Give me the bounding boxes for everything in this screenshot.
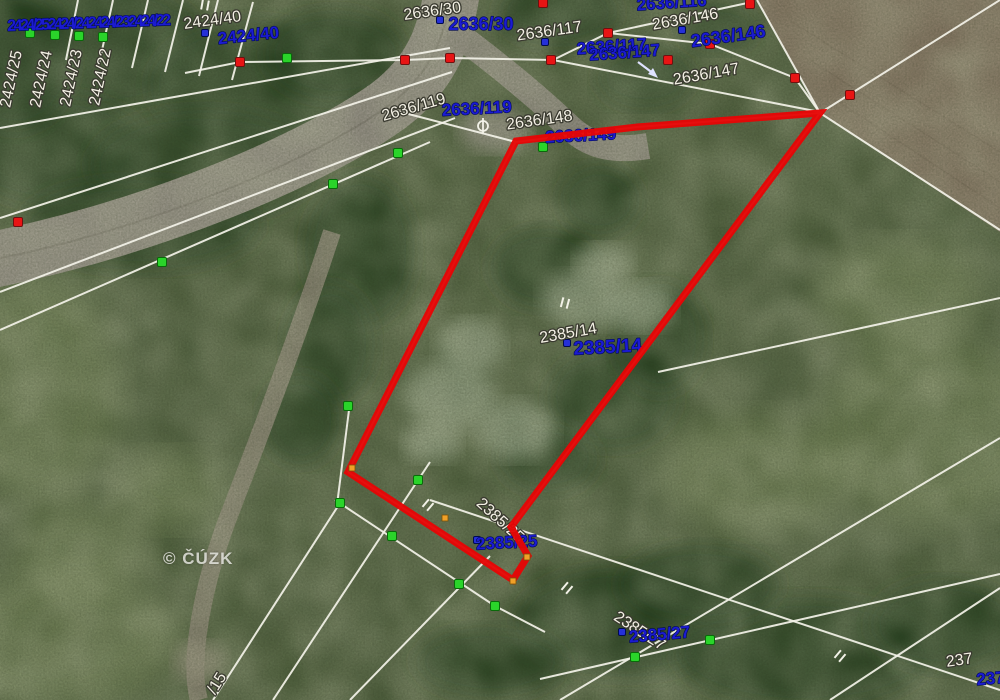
green-point-marker xyxy=(283,54,292,63)
parcel-label-overlay[interactable]: 2636/30 xyxy=(448,14,513,34)
red-point-marker xyxy=(446,54,455,63)
red-point-marker xyxy=(401,56,410,65)
green-point-marker xyxy=(491,602,500,611)
red-point-marker xyxy=(791,74,800,83)
blue-point-marker xyxy=(202,30,209,37)
red-point-marker xyxy=(846,91,855,100)
green-point-marker xyxy=(99,33,108,42)
orange-vertex-marker xyxy=(349,465,355,471)
parcel-label-overlay[interactable]: 2385/14 xyxy=(573,335,643,360)
green-point-marker xyxy=(414,476,423,485)
red-point-marker xyxy=(664,56,673,65)
green-point-marker xyxy=(75,32,84,41)
orange-vertex-marker xyxy=(442,515,448,521)
green-point-marker xyxy=(394,149,403,158)
orange-vertex-marker xyxy=(524,554,530,560)
parcel-label-overlay[interactable]: 237 xyxy=(976,668,1000,689)
parcel-label-overlay[interactable]: 2636/119 xyxy=(441,97,512,120)
green-point-marker xyxy=(631,653,640,662)
parcel-label-overlay[interactable]: 2636/129 xyxy=(398,0,473,3)
green-point-marker xyxy=(329,180,338,189)
green-point-marker xyxy=(388,532,397,541)
red-point-marker xyxy=(746,0,755,9)
map-canvas[interactable]: 2424/252424/242424/232424/222424/402636/… xyxy=(0,0,1000,700)
red-point-marker xyxy=(539,0,548,8)
green-point-marker xyxy=(455,580,464,589)
orange-vertex-marker xyxy=(510,578,516,584)
red-point-marker xyxy=(14,218,23,227)
red-point-marker xyxy=(547,56,556,65)
green-point-marker xyxy=(344,402,353,411)
cadastral-map-view[interactable]: 2424/252424/242424/232424/222424/402636/… xyxy=(0,0,1000,700)
red-point-marker xyxy=(236,58,245,67)
green-point-marker xyxy=(158,258,167,267)
green-point-marker xyxy=(336,499,345,508)
green-point-marker xyxy=(706,636,715,645)
